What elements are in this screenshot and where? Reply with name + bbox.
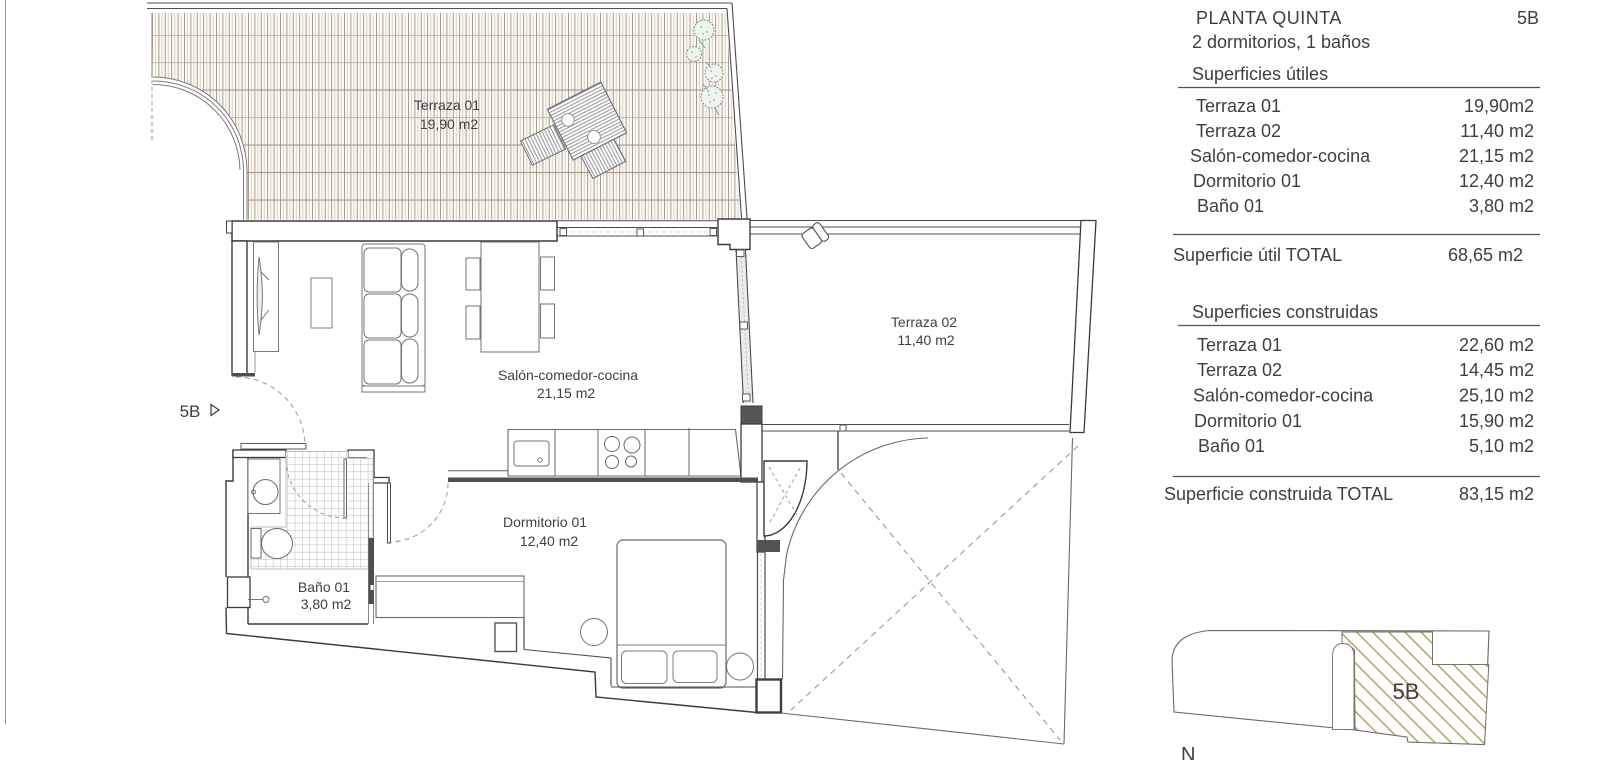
svg-text:2 dormitorios, 1 baños: 2 dormitorios, 1 baños [1192, 32, 1370, 52]
svg-text:Salón-comedor-cocina: Salón-comedor-cocina [498, 367, 638, 383]
svg-text:3,80 m2: 3,80 m2 [1469, 196, 1534, 216]
svg-text:19,90 m2: 19,90 m2 [420, 116, 479, 132]
svg-text:Salón-comedor-cocina: Salón-comedor-cocina [1193, 386, 1374, 406]
svg-text:Dormitorio 01: Dormitorio 01 [1194, 411, 1302, 431]
svg-text:14,45 m2: 14,45 m2 [1459, 360, 1534, 380]
svg-text:Superficies construidas: Superficies construidas [1192, 302, 1378, 322]
svg-text:Salón-comedor-cocina: Salón-comedor-cocina [1190, 146, 1371, 166]
svg-text:Dormitorio 01: Dormitorio 01 [503, 514, 587, 530]
svg-text:Superficie útil TOTAL: Superficie útil TOTAL [1173, 245, 1342, 265]
svg-text:PLANTA QUINTA: PLANTA QUINTA [1196, 8, 1342, 28]
svg-text:12,40 m2: 12,40 m2 [1459, 171, 1534, 191]
svg-text:Terraza 01: Terraza 01 [1197, 335, 1282, 355]
svg-text:Baño 01: Baño 01 [1197, 196, 1264, 216]
svg-text:15,90 m2: 15,90 m2 [1459, 411, 1534, 431]
svg-text:19,90m2: 19,90m2 [1464, 96, 1534, 116]
svg-text:3,80 m2: 3,80 m2 [301, 596, 352, 612]
svg-text:5B: 5B [1393, 679, 1420, 704]
svg-text:21,15 m2: 21,15 m2 [537, 385, 596, 401]
svg-text:21,15 m2: 21,15 m2 [1459, 146, 1534, 166]
svg-text:N: N [1181, 744, 1195, 760]
svg-text:Superficie construida TOTAL: Superficie construida TOTAL [1164, 484, 1393, 504]
svg-text:Terraza 02: Terraza 02 [1197, 360, 1282, 380]
svg-text:22,60 m2: 22,60 m2 [1459, 335, 1534, 355]
svg-text:5,10 m2: 5,10 m2 [1469, 436, 1534, 456]
svg-text:68,65 m2: 68,65 m2 [1448, 245, 1523, 265]
svg-text:5B: 5B [1517, 8, 1539, 28]
svg-text:Dormitorio 01: Dormitorio 01 [1193, 171, 1301, 191]
svg-text:25,10 m2: 25,10 m2 [1459, 386, 1534, 406]
svg-text:Superficies útiles: Superficies útiles [1192, 64, 1328, 84]
svg-text:5B: 5B [180, 402, 201, 421]
svg-text:Terraza 01: Terraza 01 [1196, 96, 1281, 116]
svg-text:Terraza 02: Terraza 02 [891, 314, 957, 330]
svg-text:12,40 m2: 12,40 m2 [520, 533, 579, 549]
svg-text:Baño 01: Baño 01 [1198, 436, 1265, 456]
svg-text:83,15 m2: 83,15 m2 [1459, 484, 1534, 504]
svg-text:Baño 01: Baño 01 [298, 579, 350, 595]
svg-text:Terraza 02: Terraza 02 [1196, 121, 1281, 141]
svg-text:Terraza 01: Terraza 01 [414, 97, 480, 113]
svg-text:11,40 m2: 11,40 m2 [897, 332, 955, 348]
svg-text:11,40 m2: 11,40 m2 [1460, 121, 1534, 141]
